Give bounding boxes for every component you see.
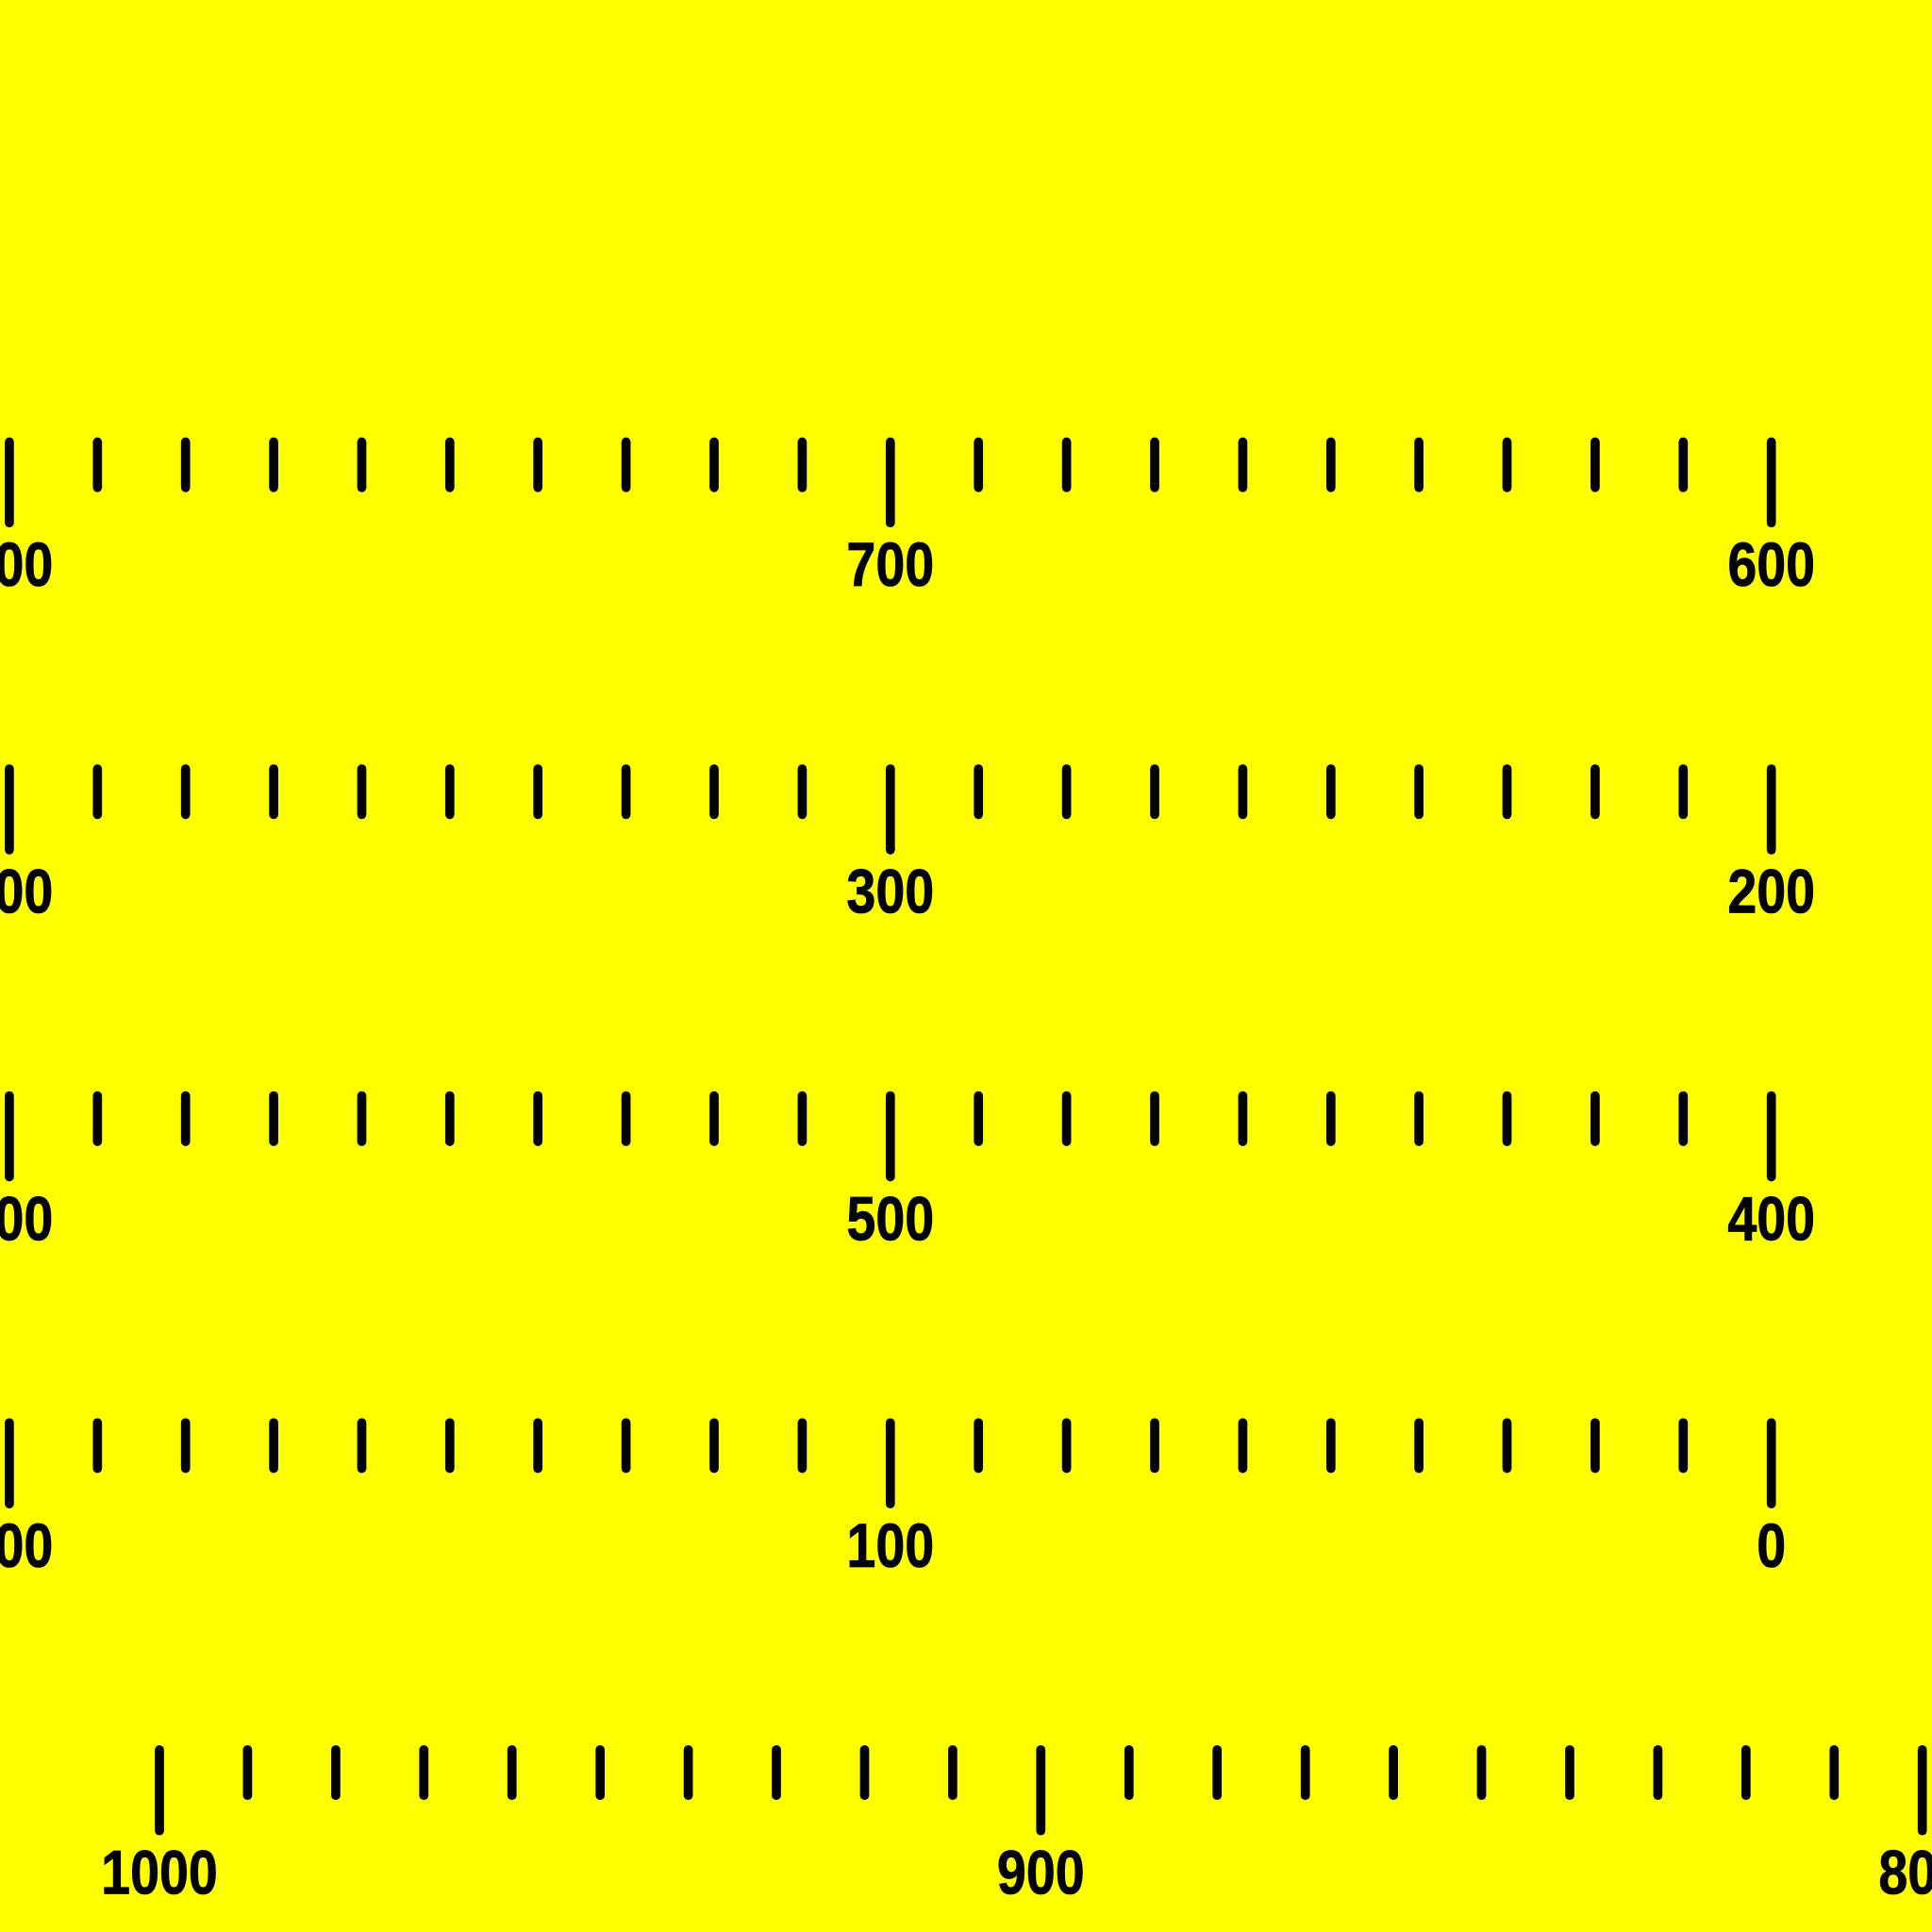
svg-text:600: 600 bbox=[1727, 530, 1815, 599]
svg-text:100: 100 bbox=[846, 1511, 934, 1580]
svg-text:300: 300 bbox=[846, 857, 934, 925]
svg-text:600: 600 bbox=[0, 1184, 53, 1253]
svg-text:900: 900 bbox=[997, 1838, 1085, 1907]
svg-text:800: 800 bbox=[0, 530, 53, 599]
svg-text:0: 0 bbox=[1757, 1511, 1786, 1580]
svg-text:700: 700 bbox=[846, 530, 934, 599]
svg-text:200: 200 bbox=[0, 1511, 53, 1580]
svg-text:400: 400 bbox=[1727, 1184, 1815, 1253]
svg-text:500: 500 bbox=[846, 1184, 934, 1253]
svg-text:400: 400 bbox=[0, 857, 53, 925]
svg-text:200: 200 bbox=[1727, 857, 1815, 925]
svg-text:800: 800 bbox=[1878, 1838, 1932, 1907]
svg-text:1000: 1000 bbox=[101, 1838, 218, 1907]
